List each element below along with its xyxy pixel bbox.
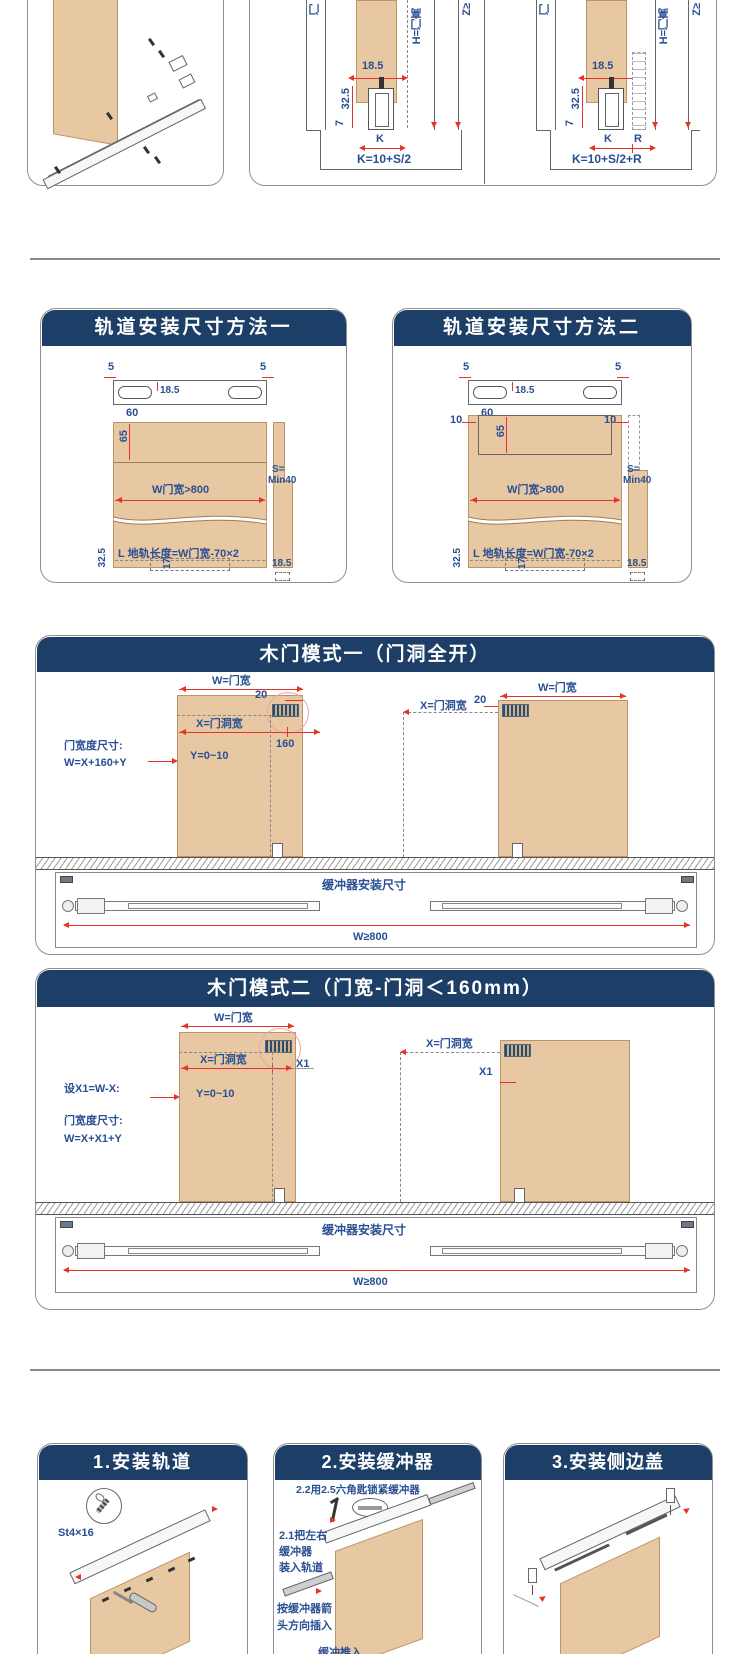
track-slot [473,386,507,399]
floor-hatch [36,857,714,870]
buffer-assembly [430,895,688,915]
wall-strip [632,52,646,130]
header-title: 3.安装侧边盖 [552,1452,664,1472]
label-w: W=门宽 [538,682,577,695]
roller-guide [368,88,394,130]
section-line [655,0,656,130]
label-z: Z≥ [691,3,704,16]
dim-r: R [634,133,642,146]
arrowhead [259,497,268,503]
dim-18-5: 18.5 [362,60,383,73]
dim-x1: X1 [479,1066,492,1079]
formula-k: K=10+S/2 [357,152,411,166]
arrowhead [179,1065,188,1071]
dim-line [181,1026,294,1027]
section-line [458,0,459,130]
arrowhead [172,758,181,764]
header-step-2: 2.安装缓冲器 [275,1445,481,1480]
label-door-height: H=门高 [411,8,424,44]
section-line [306,0,307,130]
dim-line [582,86,583,128]
dim-60: 60 [126,407,138,420]
header-step-3: 3.安装侧边盖 [505,1445,712,1480]
label-door: 门 [539,4,552,15]
dashed-dim [400,1052,500,1053]
break-wave [113,512,267,530]
header-track-method-2: 轨道安装尺寸方法二 [394,310,691,346]
arrowhead [113,497,122,503]
header-title: 木门模式一（门洞全开） [259,644,490,665]
side-cover-mark [681,1221,694,1228]
tip-2-2: 2.2用2.5六角匙锁紧缓冲器 [296,1484,420,1497]
circle-callout [259,1028,301,1070]
section-line [325,0,326,130]
dashed-line [270,715,271,857]
label-door-width: W门宽>800 [507,484,564,497]
header-title: 2.安装缓冲器 [321,1452,433,1472]
buffer-detail [502,704,529,717]
dim-tick [614,422,628,423]
tip-arrow-line1: 按缓冲器箭 [277,1603,332,1616]
label-spec-2: W=X+X1+Y [64,1133,122,1146]
arrowhead [586,145,595,151]
label-buffer-dim: 缓冲器安装尺寸 [322,878,406,892]
header-title: 轨道安装尺寸方法二 [443,317,641,338]
dim-line [179,732,320,733]
door-foot [512,843,523,858]
label-w: W=门宽 [212,675,251,688]
dim-32-5: 32.5 [452,548,464,567]
dim-line [115,500,265,501]
arrowhead [177,729,186,735]
dim-18-5-strip: 18.5 [627,558,646,570]
side-strip-lower [273,481,293,568]
strip-dashed-end [275,572,290,581]
dim-tick [512,382,513,391]
label-door-height: H=门高 [658,8,671,44]
track-slot [228,386,262,399]
dim-17: 17 [162,558,174,569]
dim-tick [157,382,158,391]
roller-guide [598,88,624,130]
arrowhead [288,1023,297,1029]
dashed-line [272,1052,273,1202]
door-panel [500,1040,630,1202]
dim-tick [104,377,116,378]
label-min40: Min40 [623,475,651,487]
dim-line [352,86,353,128]
buffer-detail [504,1044,531,1057]
side-cover-mark [60,1221,73,1228]
door-line [113,462,267,463]
arrowhead [177,686,186,692]
dim-18-5: 18.5 [592,60,613,73]
label-set-x1: 设X1=W-X: [64,1083,120,1096]
arrowhead [650,145,659,151]
label-y: Y=0~10 [196,1088,235,1101]
dim-line [179,689,303,690]
section-line [536,0,537,130]
dim-tick [262,377,274,378]
arrowhead [330,1517,339,1523]
label-w800: W≥800 [353,1276,388,1289]
side-cover-piece [666,1488,675,1503]
arrowhead [468,497,477,503]
floor-hatch [36,1202,714,1215]
arrowhead [174,1094,183,1100]
arrowhead [400,145,409,151]
tip-2-1-line2: 缓冲器 [279,1546,312,1559]
insert-arrow [532,1585,533,1595]
centerline [407,0,408,148]
label-w: W=门宽 [214,1012,253,1025]
dim-tick [287,727,288,737]
arrowhead [575,75,584,81]
label-door: 门 [309,4,322,15]
dim-32-5: 32.5 [97,548,109,567]
arrowhead [684,1267,693,1273]
panel-divider-line [484,0,485,184]
dim-line [129,424,130,460]
dim-18-5: 18.5 [515,385,534,397]
dim-160: 160 [276,738,294,751]
arrowhead [397,1049,406,1055]
dim-5: 5 [260,361,266,374]
header-title: 木门模式二（门宽-门洞＜160mm） [207,978,543,999]
arrowhead [72,1574,81,1580]
header-title: 轨道安装尺寸方法一 [94,317,292,338]
buffer-assembly [430,1240,688,1260]
label-x: X=门洞宽 [200,1054,247,1067]
dim-line [351,78,402,79]
dim-line [506,417,507,453]
dashed-line [403,712,404,857]
header-wood-door-mode-1: 木门模式一（门洞全开） [37,637,714,672]
dim-tick [484,706,498,707]
dim-line [64,1270,690,1271]
dashed-dim [403,712,498,713]
dim-17: 17 [517,558,529,569]
dim-tick [462,422,476,423]
dim-tick [500,1082,516,1083]
arrowhead [345,75,354,81]
label-buffer-dim: 缓冲器安装尺寸 [322,1223,406,1237]
label-door-width: W门宽>800 [152,484,209,497]
tip-2-1-line3: 装入轨道 [279,1562,323,1575]
dim-k: K [376,133,384,146]
header-track-method-1: 轨道安装尺寸方法一 [42,310,346,346]
strip-dashed-end [630,572,645,581]
label-spec-1: 门宽度尺寸: [64,1115,123,1128]
arrowhead [356,145,365,151]
buffer-assembly [62,1240,320,1260]
dim-18-5: 18.5 [160,385,179,397]
section-line [434,0,435,130]
insert-arrow [670,1505,671,1515]
dashed-line [179,1052,282,1053]
track-slot [583,386,617,399]
header-title: 1.安装轨道 [93,1452,192,1472]
formula-kr: K=10+S/2+R [572,152,642,166]
arrowhead [179,1023,188,1029]
label-spec-2: W=X+160+Y [64,757,127,770]
circle-callout [267,692,309,734]
label-w800: W≥800 [353,931,388,944]
arrowhead [614,497,623,503]
door-panel [53,0,118,146]
label-y: Y=0~10 [190,750,229,763]
dim-line [592,148,650,149]
arrowhead [314,729,323,735]
arrowhead [60,1267,69,1273]
dim-x1: X1 [296,1058,309,1071]
label-spec-1: 门宽度尺寸: [64,740,123,753]
side-cover-mark [681,876,694,883]
dim-7: 7 [564,120,577,126]
dim-k: K [604,133,612,146]
dim-line [362,148,400,149]
arrowhead [684,922,693,928]
dim-20: 20 [255,689,267,702]
dashed-line [400,1052,401,1202]
dim-line [64,925,690,926]
arrowhead [400,709,409,715]
dim-line [500,696,626,697]
dim-5: 5 [615,361,621,374]
track-slot [118,386,152,399]
side-cover-mark [60,876,73,883]
dim-tick [617,377,629,378]
door-foot [514,1188,525,1203]
dim-10: 10 [450,414,462,427]
door-panel [498,700,628,857]
label-screw-size: St4×16 [58,1527,94,1540]
dim-line [181,1068,292,1069]
side-cover-piece [528,1568,537,1583]
label-z: Z≥ [461,3,474,16]
tip-arrow-line2: 头方向插入 [277,1620,332,1633]
dim-7: 7 [334,120,347,126]
section-divider [30,258,720,260]
partial-caption: 缓冲推入 [318,1647,362,1654]
arrowhead [498,693,507,699]
dim-18-5-strip: 18.5 [272,558,291,570]
arrowhead [212,1506,221,1512]
arrowhead [620,693,629,699]
dim-line [581,78,632,79]
break-wave [468,512,622,530]
side-strip-dashed [628,415,640,470]
section-line [688,0,689,130]
section-divider [30,1369,720,1371]
instruction-sheet: 门 18.5 32.5 7 H=门高 Z≥ K K=10+S/2 门 18.5 … [0,0,750,1654]
door-foot [274,1188,285,1203]
header-wood-door-mode-2: 木门模式二（门宽-门洞＜160mm） [37,970,714,1007]
section-line [555,0,556,130]
tip-2-1-line1: 2.1把左右 [279,1530,327,1543]
dim-tick [459,377,471,378]
label-min40: Min40 [268,475,296,487]
dim-10: 10 [604,414,616,427]
label-x: X=门洞宽 [426,1038,473,1051]
label-x: X=门洞宽 [196,718,243,731]
header-step-1: 1.安装轨道 [39,1445,247,1480]
arrowhead [297,686,306,692]
buffer-assembly [62,895,320,915]
dim-5: 5 [108,361,114,374]
dim-line [470,500,620,501]
buffer-mini [358,1506,382,1510]
dim-5: 5 [463,361,469,374]
arrowhead [60,922,69,928]
arrowhead [316,1588,325,1594]
door-foot [272,843,283,858]
